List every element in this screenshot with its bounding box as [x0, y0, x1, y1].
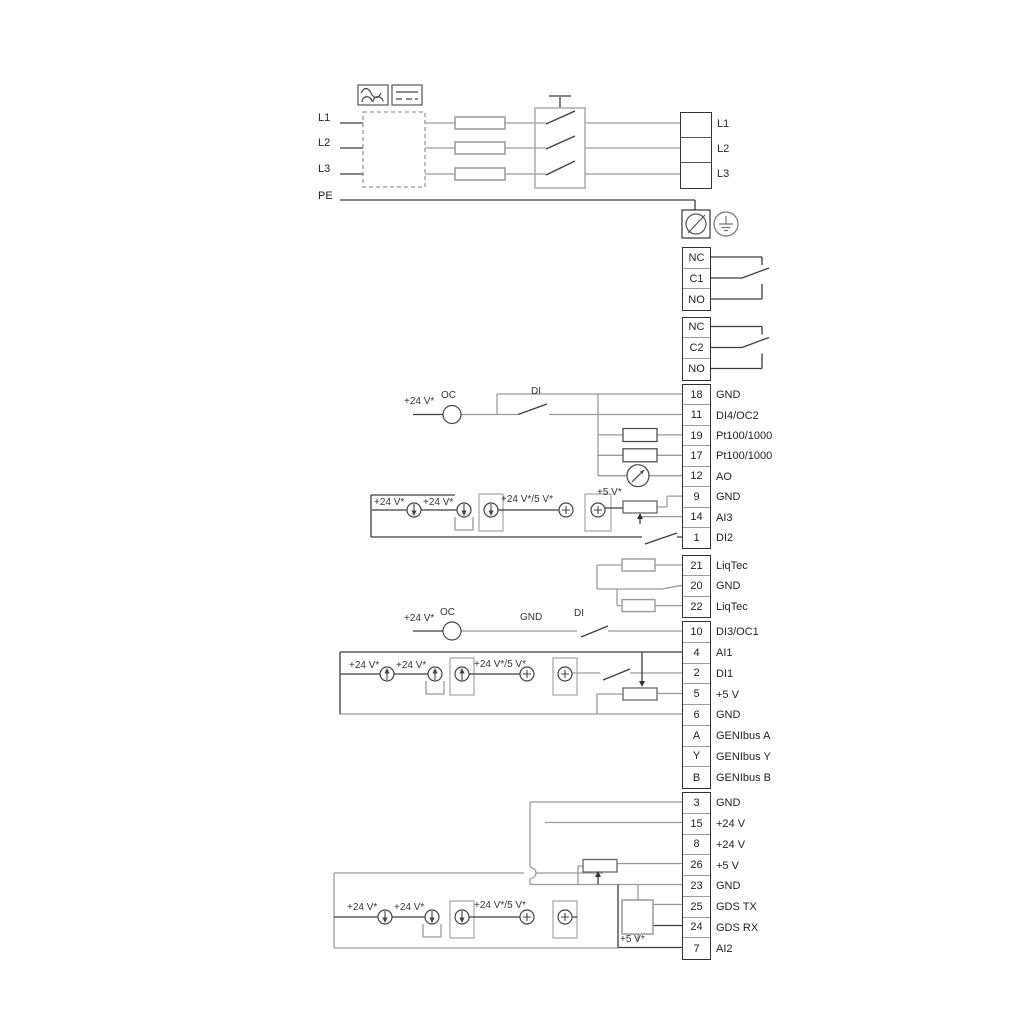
relay2-terminal: NO [683, 359, 710, 380]
terminal-name: +5 V [716, 855, 826, 876]
terminal-strip-1: 18111917129141 [682, 384, 711, 549]
gds-sensor-box [622, 900, 653, 934]
terminal-number: Y [683, 747, 710, 768]
terminal-name: LiqTec [716, 556, 826, 576]
terminal-strip-4: 3158262325247 [682, 792, 711, 960]
liqtec-strip: 212022 [682, 555, 711, 618]
terminal-name: AI3 [716, 508, 826, 528]
terminal-name: +5 V [716, 684, 826, 705]
terminal-number: 18 [683, 385, 710, 405]
label-di: DI [574, 608, 584, 619]
mains-cell [681, 163, 711, 188]
label-l2-in: L2 [318, 137, 330, 149]
terminal-name: AO [716, 467, 826, 487]
terminal-name: +24 V [716, 814, 826, 835]
terminal-number: 24 [683, 918, 710, 939]
terminal-name: DI2 [716, 528, 826, 548]
terminal-number: 14 [683, 508, 710, 528]
label-l3-out: L3 [717, 168, 729, 180]
relay1-terminal: NC [683, 248, 710, 269]
terminal-number: 23 [683, 876, 710, 897]
relay1-block: NCC1NO [682, 247, 711, 311]
terminal-name: LiqTec [716, 597, 826, 617]
label-24v-5v: +24 V*/5 V* [474, 659, 526, 670]
relay2-block: NCC2NO [682, 317, 711, 381]
terminal-name: Pt100/1000 [716, 426, 826, 446]
terminal-number: 21 [683, 556, 710, 576]
mains-cell [681, 138, 711, 163]
label-24v: +24 V* [349, 660, 379, 671]
label-l1-out: L1 [717, 118, 729, 130]
terminal-name: Pt100/1000 [716, 446, 826, 466]
terminal-name: AI1 [716, 643, 826, 664]
oc-output-icon-1 [443, 406, 461, 424]
label-l3-in: L3 [318, 163, 330, 175]
fuse-l3 [455, 168, 505, 180]
mains-cell [681, 113, 711, 138]
terminal-number: A [683, 726, 710, 747]
terminal-name: GENIbus B [716, 767, 826, 788]
terminal-number: 22 [683, 597, 710, 617]
terminal-name: GENIbus Y [716, 747, 826, 768]
label-24v-5v: +24 V*/5 V* [501, 494, 553, 505]
potentiometer-ai1 [623, 688, 657, 700]
terminal-name: GENIbus A [716, 726, 826, 747]
terminal-name: DI3/OC1 [716, 622, 826, 643]
terminal-number: 2 [683, 664, 710, 685]
label-5v: +5 V* [597, 487, 622, 498]
terminal-name: AI2 [716, 938, 826, 959]
label-pe-in: PE [318, 190, 333, 202]
terminal-number: 20 [683, 576, 710, 596]
terminal-name: +24 V [716, 835, 826, 856]
relay1-terminal: C1 [683, 269, 710, 290]
relay2-terminal: NC [683, 318, 710, 339]
label-di: DI [531, 386, 541, 397]
fuse-l2 [455, 142, 505, 154]
terminal-number: 19 [683, 426, 710, 446]
wiring-diagram: L1 L2 L3 PE L1 L2 L3 NCC1NO NCC2NO 18111… [0, 0, 1024, 1024]
terminal-number: 15 [683, 814, 710, 835]
wiper-arrow-ai1 [639, 681, 645, 687]
liqtec-resistor-1 [622, 559, 655, 571]
mains-terminal-block [680, 112, 712, 189]
terminal-strip-4-names: GND+24 V+24 V+5 VGNDGDS TXGDS RXAI2 [716, 793, 826, 959]
pt100-resistor-1 [623, 429, 657, 442]
label-24v: +24 V* [396, 660, 426, 671]
potentiometer-ai3 [623, 501, 657, 513]
pt100-resistor-2 [623, 449, 657, 462]
terminal-number: 12 [683, 467, 710, 487]
relay1-terminal: NO [683, 289, 710, 310]
terminal-name: GND [716, 876, 826, 897]
terminal-number: 25 [683, 897, 710, 918]
oc-output-icon-2 [443, 622, 461, 640]
liqtec-resistor-2 [622, 600, 655, 612]
terminal-number: 7 [683, 938, 710, 959]
terminal-name: GDS TX [716, 897, 826, 918]
terminal-name: GND [716, 576, 826, 596]
terminal-number: 8 [683, 835, 710, 856]
label-24v: +24 V* [404, 396, 434, 407]
terminal-name: DI4/OC2 [716, 405, 826, 425]
label-gnd: GND [520, 612, 542, 623]
terminal-number: 11 [683, 405, 710, 425]
terminal-number: 10 [683, 622, 710, 643]
gray-wires [334, 123, 682, 948]
terminal-name: GND [716, 793, 826, 814]
relay2-terminal: C2 [683, 338, 710, 359]
label-oc: OC [440, 607, 455, 618]
terminal-number: 5 [683, 684, 710, 705]
label-l2-out: L2 [717, 143, 729, 155]
diagram-linework [0, 0, 1024, 1024]
terminal-strip-3: 104256AYB [682, 621, 711, 789]
label-24v: +24 V* [394, 902, 424, 913]
label-oc: OC [441, 390, 456, 401]
terminal-name: GND [716, 385, 826, 405]
label-5v: +5 V* [620, 934, 645, 945]
potentiometer-ai2 [583, 860, 617, 873]
liqtec-strip-names: LiqTecGNDLiqTec [716, 556, 826, 617]
label-24v: +24 V* [374, 497, 404, 508]
terminal-number: 4 [683, 643, 710, 664]
terminal-name: DI1 [716, 664, 826, 685]
terminal-name: GND [716, 705, 826, 726]
label-24v: +24 V* [347, 902, 377, 913]
terminal-number: 1 [683, 528, 710, 548]
label-24v: +24 V* [404, 613, 434, 624]
label-24v: +24 V* [423, 497, 453, 508]
terminal-strip-1-names: GNDDI4/OC2Pt100/1000Pt100/1000AOGNDAI3DI… [716, 385, 826, 548]
label-l1-in: L1 [318, 112, 330, 124]
terminal-number: 6 [683, 705, 710, 726]
terminal-number: B [683, 767, 710, 788]
terminal-number: 9 [683, 487, 710, 507]
label-24v-5v: +24 V*/5 V* [474, 900, 526, 911]
emc-filter-box [363, 112, 425, 187]
terminal-name: GDS RX [716, 918, 826, 939]
terminal-number: 17 [683, 446, 710, 466]
terminal-number: 3 [683, 793, 710, 814]
fuse-l1 [455, 117, 505, 129]
terminal-name: GND [716, 487, 826, 507]
terminal-strip-3-names: DI3/OC1AI1DI1+5 VGNDGENIbus AGENIbus YGE… [716, 622, 826, 788]
terminal-number: 26 [683, 855, 710, 876]
dc-symbol-box [392, 85, 422, 105]
